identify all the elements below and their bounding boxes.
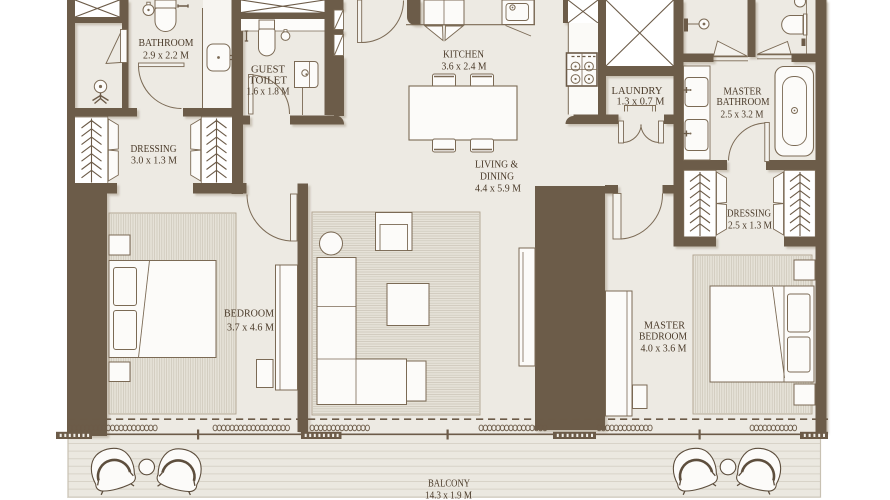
svg-text:TOILET: TOILET <box>249 76 288 87</box>
svg-text:2.5 x 1.3 M: 2.5 x 1.3 M <box>728 221 773 232</box>
svg-text:DRESSING: DRESSING <box>131 144 177 155</box>
svg-text:MASTER: MASTER <box>724 87 762 98</box>
svg-text:GUEST: GUEST <box>251 65 286 76</box>
svg-text:BEDROOM: BEDROOM <box>639 332 688 343</box>
svg-text:DINING: DINING <box>480 172 514 183</box>
svg-text:2.9 x 2.2 M: 2.9 x 2.2 M <box>143 51 190 62</box>
svg-text:BEDROOM: BEDROOM <box>224 309 275 320</box>
svg-text:4.4 x 5.9 M: 4.4 x 5.9 M <box>475 184 522 195</box>
svg-text:3.0 x 1.3 M: 3.0 x 1.3 M <box>131 156 178 167</box>
svg-text:1.3 x 0.7 M: 1.3 x 0.7 M <box>617 97 666 108</box>
svg-text:BALCONY: BALCONY <box>428 479 470 490</box>
svg-text:KITCHEN: KITCHEN <box>443 50 484 61</box>
svg-text:BATHROOM: BATHROOM <box>139 38 195 49</box>
svg-text:1.6 x 1.8 M: 1.6 x 1.8 M <box>247 87 291 98</box>
svg-text:14.3 x 1.9 M: 14.3 x 1.9 M <box>425 491 473 500</box>
svg-text:DRESSING: DRESSING <box>727 209 771 220</box>
svg-text:2.5 x 3.2 M: 2.5 x 3.2 M <box>721 110 765 121</box>
svg-text:4.0 x 3.6 M: 4.0 x 3.6 M <box>641 344 688 355</box>
svg-text:3.6 x 2.4 M: 3.6 x 2.4 M <box>442 62 488 73</box>
svg-text:BATHROOM: BATHROOM <box>717 97 771 108</box>
svg-text:LAUNDRY: LAUNDRY <box>612 86 663 97</box>
svg-text:LIVING &: LIVING & <box>475 160 518 171</box>
svg-text:3.7 x 4.6 M: 3.7 x 4.6 M <box>227 323 275 334</box>
svg-text:MASTER: MASTER <box>644 321 685 332</box>
